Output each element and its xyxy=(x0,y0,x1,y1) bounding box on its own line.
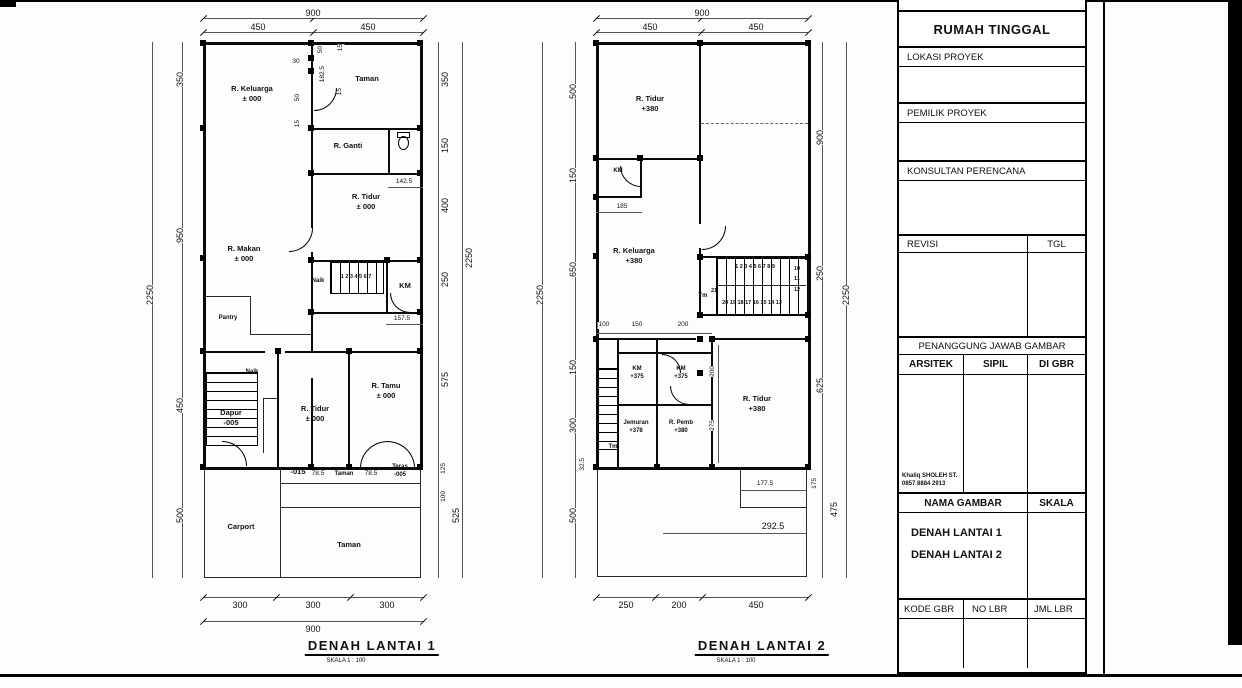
room-label-km1: KM +375 xyxy=(630,366,644,382)
dim-label: 15 xyxy=(338,44,345,51)
revisi-tgl-body xyxy=(899,252,1085,336)
door-arc xyxy=(670,386,689,405)
room-label-teras: Teras -005 xyxy=(392,464,408,480)
dim-label: 275 xyxy=(710,420,717,431)
dim-label: 450 xyxy=(747,23,764,32)
dim-label: 500 xyxy=(176,508,185,523)
dim-label: 157.5 xyxy=(393,316,411,323)
jml-lbr-label: JML LBR xyxy=(1027,600,1085,618)
room-label-carport: Carport xyxy=(227,522,254,532)
dim-label: 525 xyxy=(452,508,461,523)
sheet-right-border xyxy=(1228,0,1242,645)
room-label-tidur: R. Tidur ± 000 xyxy=(352,192,380,212)
sheet-bottom-border xyxy=(0,674,1242,677)
dim-label: 185 xyxy=(616,204,629,211)
dim-label: 900 xyxy=(304,625,321,634)
door-arc xyxy=(289,228,313,252)
door-arc xyxy=(314,88,337,111)
dim-label: 450 xyxy=(249,23,266,32)
room-label-km2: KM +375 xyxy=(674,366,688,382)
toilet-icon xyxy=(398,136,409,150)
plan1-scale: SKALA 1 : 100 xyxy=(326,658,365,664)
arsitek-label: ARSITEK xyxy=(899,355,963,374)
title-block: NAMA PROYEK RUMAH TINGGAL LOKASI PROYEK … xyxy=(897,0,1087,674)
drawing-name-1: DENAH LANTAI 1 xyxy=(911,527,1002,539)
dim-label: 475 xyxy=(830,502,839,517)
kode-gbr-body xyxy=(899,618,1085,668)
dim-label: 125 xyxy=(441,463,448,474)
lokasi-proyek-label: LOKASI PROYEK xyxy=(899,46,1085,66)
dim-label: 350 xyxy=(441,72,450,87)
dim-label: 292.5 xyxy=(761,522,786,531)
plan1-title: DENAH LANTAI 1 xyxy=(305,638,439,656)
dim-label: 250 xyxy=(816,266,825,281)
sheet-corner-mark xyxy=(0,0,16,7)
door-arc xyxy=(390,293,410,313)
dim-label: 177.5 xyxy=(756,481,774,488)
dim-label: 150 xyxy=(631,322,644,329)
room-label-tidur-bawah: R. Tidur +380 xyxy=(743,394,771,414)
room-label-ganti: R. Ganti xyxy=(334,141,363,151)
dim-label: 32.5 xyxy=(580,458,587,471)
dim-label: 150 xyxy=(569,168,578,183)
dim-label: 900 xyxy=(693,9,710,18)
room-label-makan: R. Makan ± 000 xyxy=(228,244,261,264)
kode-gbr-header: KODE GBR NO LBR JML LBR xyxy=(899,598,1085,618)
dim-label: 450 xyxy=(359,23,376,32)
dim-label: 300 xyxy=(304,601,321,610)
di-gbr-label: DI GBR xyxy=(1027,355,1085,374)
project-name: RUMAH TINGGAL xyxy=(899,10,1085,46)
konsultan-value xyxy=(899,180,1085,234)
dim-label: 625 xyxy=(816,378,825,393)
dim-label: 150 xyxy=(569,360,578,375)
stair-treads xyxy=(598,368,619,450)
room-label-pemb: R. Pemb +380 xyxy=(669,420,693,436)
plan2-title: DENAH LANTAI 2 xyxy=(695,638,829,656)
nama-gambar-body: DENAH LANTAI 1 DENAH LANTAI 2 xyxy=(899,512,1085,598)
no-lbr-label: NO LBR xyxy=(963,600,1027,618)
pemilik-proyek-label: PEMILIK PROYEK xyxy=(899,102,1085,122)
room-label-taman-strip: Taman xyxy=(335,471,354,479)
dim-label: 2250 xyxy=(465,248,474,268)
nama-gambar-label: NAMA GAMBAR xyxy=(899,494,1027,512)
sheet-inner-frame-line xyxy=(1103,0,1105,676)
room-label-taman-bawah: Taman xyxy=(337,540,361,550)
dim-label: 2250 xyxy=(536,285,545,305)
room-label-jemuran: Jemuran +378 xyxy=(623,420,648,436)
dim-label: 150 xyxy=(441,138,450,153)
dim-label: 100 xyxy=(598,322,611,329)
dim-label: 400 xyxy=(441,198,450,213)
dim-label: 50 xyxy=(295,94,302,101)
dim-label: 142.5 xyxy=(395,179,413,186)
revisi-tgl-header: REVISI TGL xyxy=(899,234,1085,252)
dim-label: 15 xyxy=(337,88,344,95)
dim-label: 175 xyxy=(812,478,819,489)
dim-label: 575 xyxy=(441,372,450,387)
stair-direction-label: Naik xyxy=(312,278,325,286)
dim-label: 900 xyxy=(816,130,825,145)
penanggung-header: ARSITEK SIPIL DI GBR xyxy=(899,354,1085,374)
dim-label: 900 xyxy=(304,9,321,18)
sipil-label: SIPIL xyxy=(963,355,1027,374)
dim-label: 200 xyxy=(670,601,687,610)
stair-numbers: 1 2 3 4 5 6 7 8 9 xyxy=(735,263,775,271)
lokasi-proyek-value xyxy=(899,66,1085,102)
dim-label: 250 xyxy=(441,272,450,287)
room-label-keluarga: R. Keluarga ± 000 xyxy=(231,84,273,104)
konsultan-label: KONSULTAN PERENCANA xyxy=(899,160,1085,180)
dim-label: 500 xyxy=(569,84,578,99)
room-label-tidur-atas: R. Tidur +380 xyxy=(636,94,664,114)
drawing-name-2: DENAH LANTAI 2 xyxy=(911,549,1002,561)
dim-label: 300 xyxy=(378,601,395,610)
dim-label: 350 xyxy=(176,72,185,87)
dim-label: 950 xyxy=(176,228,185,243)
dim-label: 250 xyxy=(617,601,634,610)
dim-label: 100 xyxy=(441,491,448,502)
skala-label: SKALA xyxy=(1027,494,1085,512)
plan2-scale: SKALA 1 : 100 xyxy=(716,658,755,664)
dim-label: 15 xyxy=(295,120,302,127)
toilet-icon xyxy=(397,132,410,138)
door-arc xyxy=(360,441,388,468)
dim-label: 78.5 xyxy=(311,471,326,478)
stair-numbers: 21 xyxy=(711,287,717,295)
arsitek-name: Khaliq SHOLEH ST. xyxy=(902,473,957,481)
room-label-taman: Taman xyxy=(355,74,379,84)
revisi-label: REVISI xyxy=(899,236,1027,252)
door-arc xyxy=(702,226,726,250)
arsitek-phone: 0857 8884 2913 xyxy=(902,481,957,489)
dim-label: 650 xyxy=(569,262,578,277)
room-label-km-atas: KM xyxy=(613,168,622,176)
dim-label: 50 xyxy=(318,46,325,53)
nama-proyek-label: NAMA PROYEK xyxy=(899,0,1085,10)
room-label-keluarga2: R. Keluarga +380 xyxy=(613,246,655,266)
dim-label: 300 xyxy=(231,601,248,610)
kode-gbr-label: KODE GBR xyxy=(899,600,963,618)
room-label-pantry: Pantry xyxy=(219,315,238,323)
dim-label: 200 xyxy=(710,366,717,377)
stair-direction-label: Naik xyxy=(246,369,259,377)
dim-label: 2250 xyxy=(842,285,851,305)
tgl-label: TGL xyxy=(1027,236,1085,252)
dim-label: 450 xyxy=(176,398,185,413)
dim-label: 300 xyxy=(569,418,578,433)
dim-label: 182.5 xyxy=(320,66,327,82)
room-label-dapur: Dapur -005 xyxy=(220,408,242,428)
dim-label: 30 xyxy=(291,59,300,66)
room-label-km: KM xyxy=(399,281,411,291)
stair-direction-label: Tm xyxy=(699,293,708,301)
room-label-tamu: R. Tamu ± 000 xyxy=(371,381,400,401)
dim-label: 2250 xyxy=(146,285,155,305)
door-arc xyxy=(620,166,641,187)
penanggung-label: PENANGGUNG JAWAB GAMBAR xyxy=(899,336,1085,354)
nama-gambar-header: NAMA GAMBAR SKALA xyxy=(899,492,1085,512)
penanggung-body: Khaliq SHOLEH ST. 0857 8884 2913 xyxy=(899,374,1085,492)
dim-label: 78.5 xyxy=(364,471,379,478)
dim-label: 450 xyxy=(747,601,764,610)
stair-numbers: 1 2 3 4 5 6 7 xyxy=(341,273,372,281)
stair-numbers: 10 11 12 xyxy=(794,264,800,295)
stair-numbers: 20 19 18 17 16 15 14 13 xyxy=(722,299,782,307)
room-label-tidur2: R. Tidur ± 000 xyxy=(301,404,329,424)
level-label: -015 xyxy=(290,467,305,477)
dim-label: 450 xyxy=(641,23,658,32)
dim-label: 200 xyxy=(677,322,690,329)
dim-label: 500 xyxy=(569,508,578,523)
pemilik-proyek-value xyxy=(899,122,1085,160)
stair-direction-label: Tm xyxy=(609,444,618,452)
